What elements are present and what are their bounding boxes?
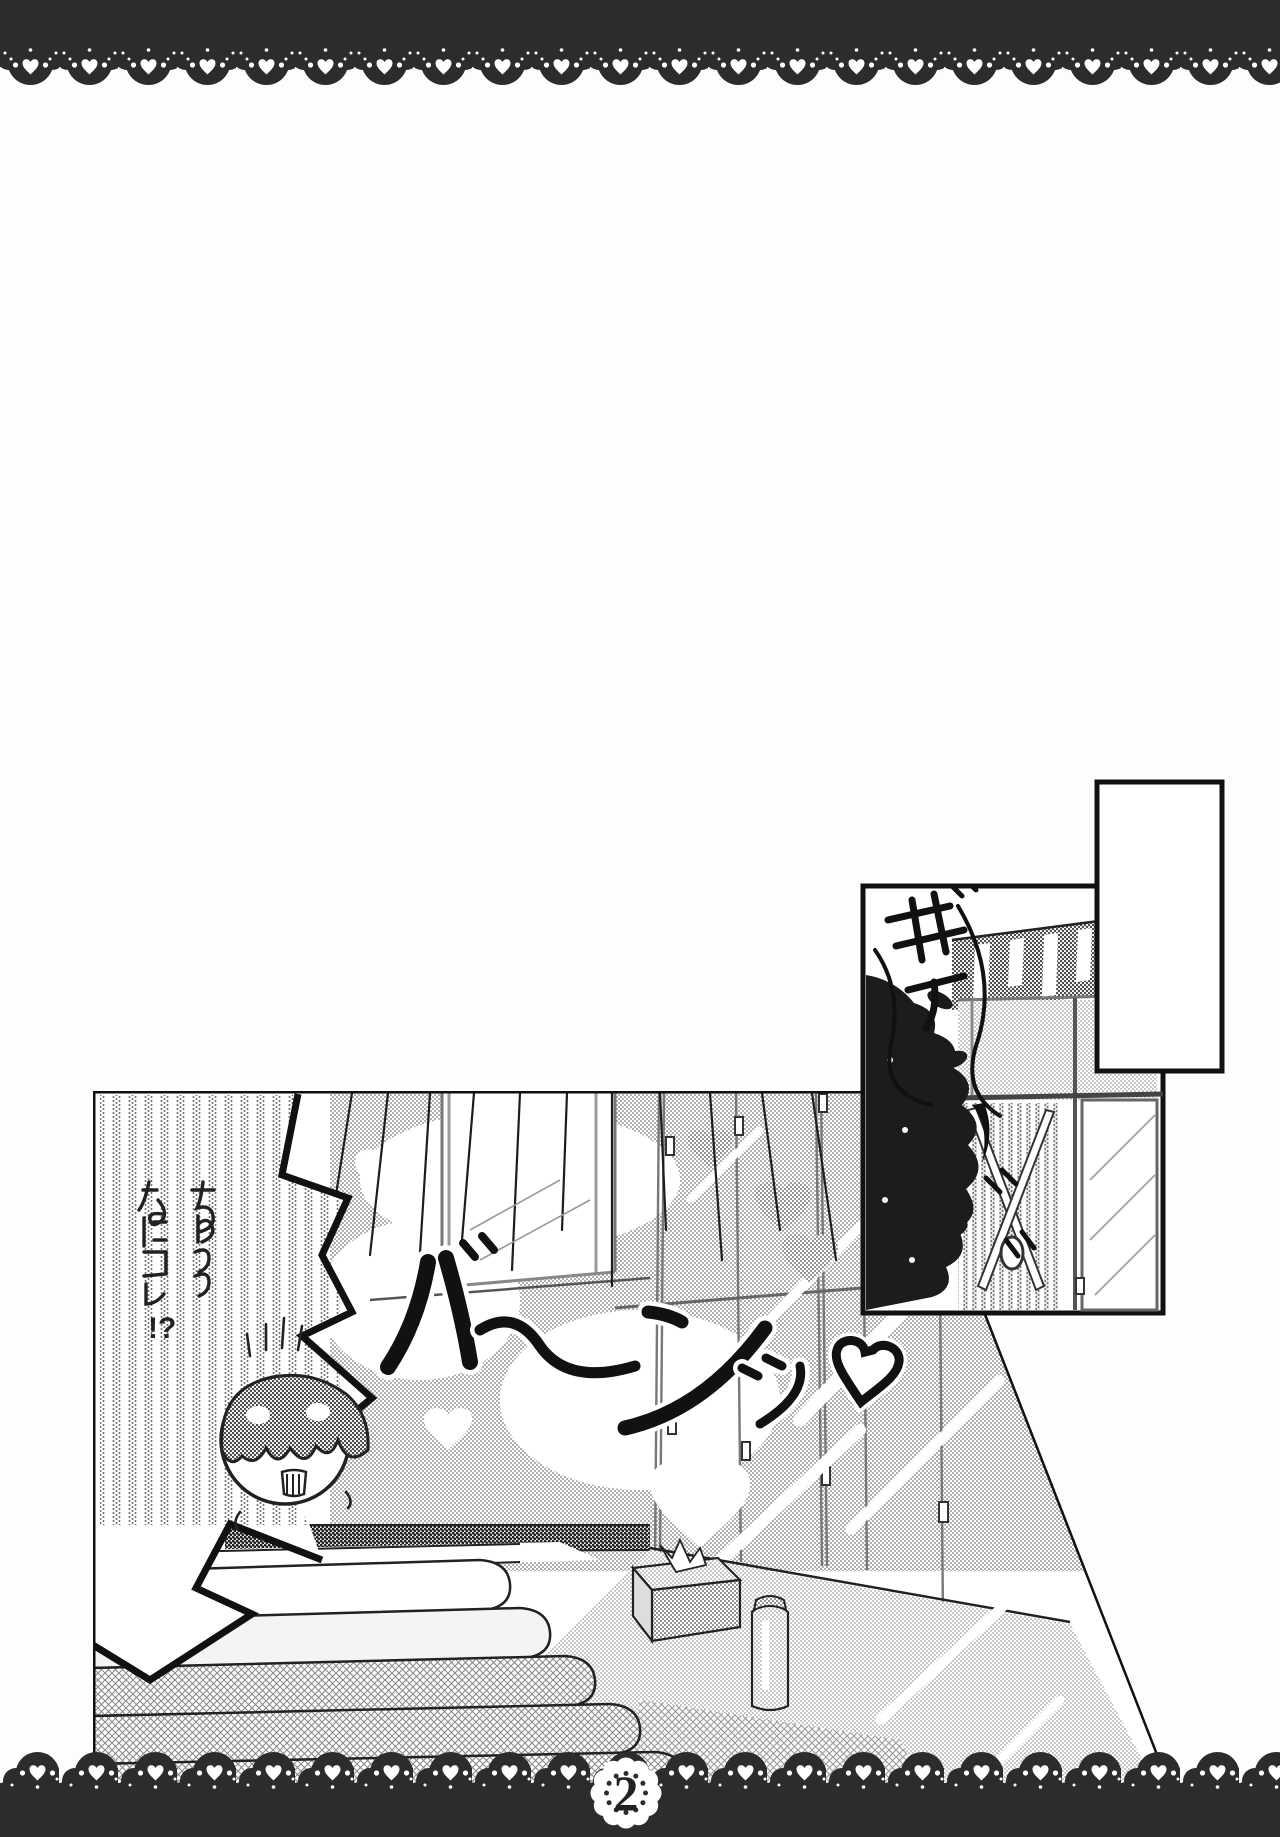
svg-text:!?: !?	[148, 1312, 176, 1345]
svg-text:2: 2	[614, 1765, 639, 1821]
